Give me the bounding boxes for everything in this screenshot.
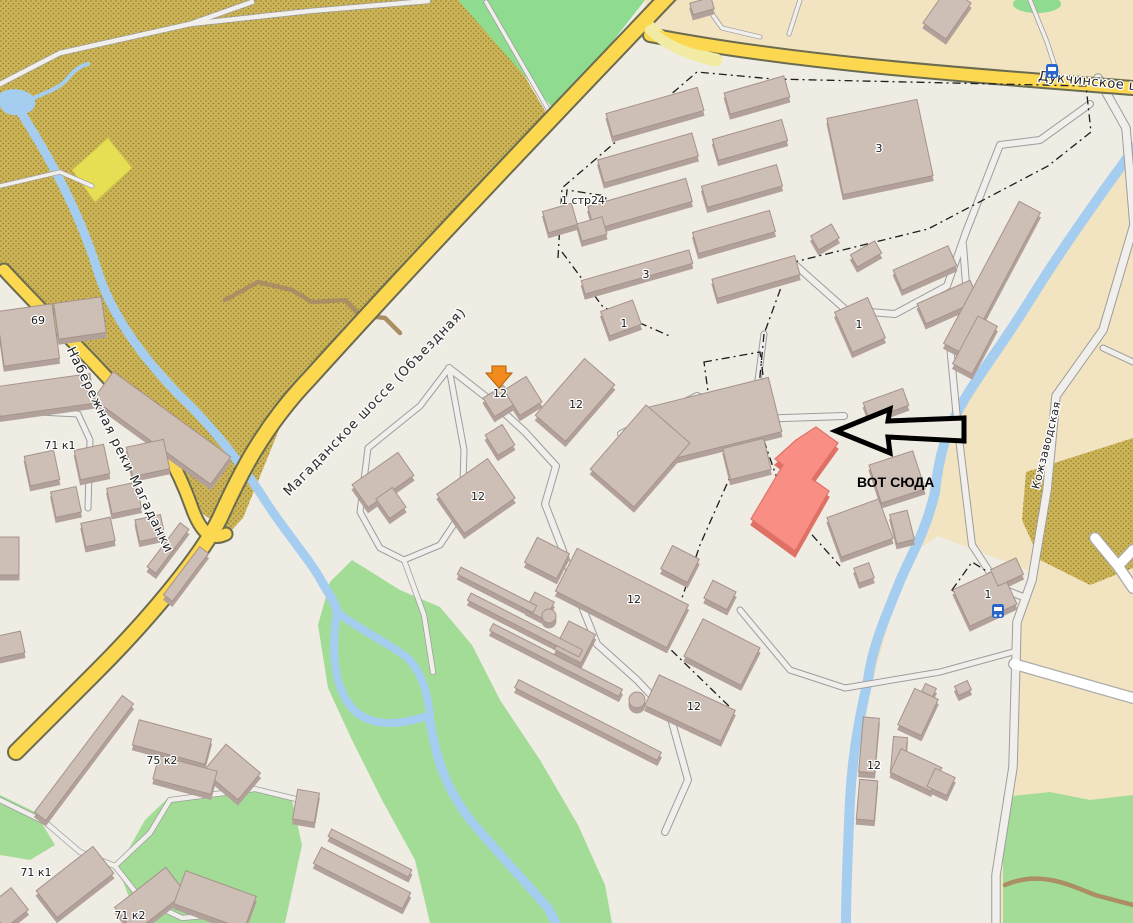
building-label: 3 (643, 268, 650, 281)
bus-stop-icon (1046, 64, 1058, 78)
building (74, 444, 110, 480)
annotation-text: ВОТ СЮДА (857, 474, 934, 490)
building-label: 1 (856, 318, 863, 331)
building-label: 71 к2 (114, 909, 145, 922)
tank-building (629, 692, 645, 708)
building (856, 779, 877, 820)
building-label: 1 стр24 (561, 194, 605, 207)
building-label: 69 (31, 314, 45, 327)
building-label: 75 к2 (146, 754, 177, 767)
grass-se (1003, 792, 1133, 923)
building-label: 12 (569, 398, 583, 411)
building-label: 71 к1 (20, 866, 51, 879)
bus-stop-icon (992, 604, 1004, 618)
building (24, 450, 60, 486)
building-label: 71 к1 (44, 439, 75, 452)
building-label: 12 (867, 759, 881, 772)
building-label: 12 (471, 490, 485, 503)
building-label: 1 (621, 317, 628, 330)
building-label: 1 (985, 588, 992, 601)
building-label: 3 (876, 142, 883, 155)
building-label: 12 (627, 593, 641, 606)
building (0, 304, 60, 366)
map-svg: Магаданское шоссе (Объездная) Набережная… (0, 0, 1133, 923)
building-label: 12 (493, 387, 507, 400)
building (54, 297, 107, 339)
building (0, 537, 19, 575)
map-canvas: Магаданское шоссе (Объездная) Набережная… (0, 0, 1133, 923)
building-label: 12 (687, 700, 701, 713)
building (293, 789, 320, 822)
building (51, 487, 82, 518)
tank-building (542, 609, 556, 623)
